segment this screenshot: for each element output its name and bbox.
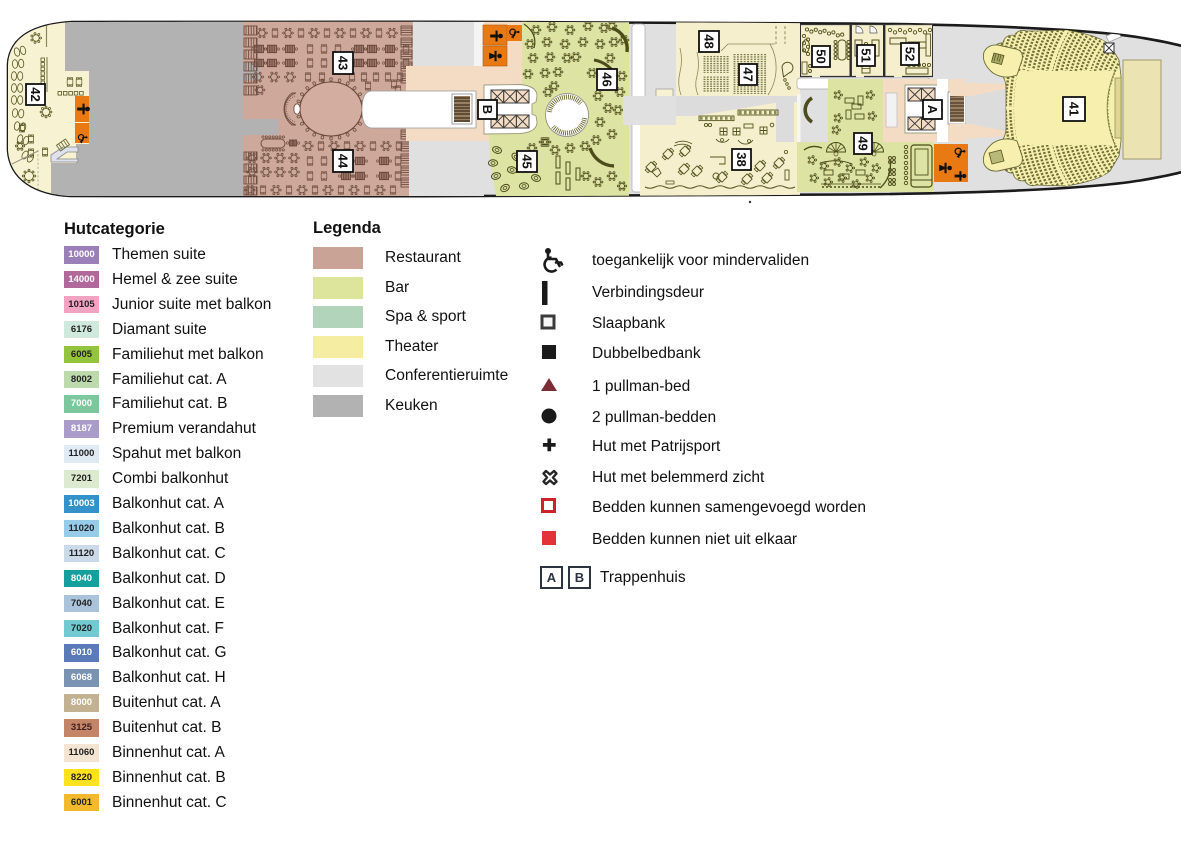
svg-text:45: 45 <box>520 154 535 168</box>
svg-text:46: 46 <box>600 72 615 86</box>
svg-text:B: B <box>480 105 495 114</box>
svg-text:44: 44 <box>336 154 351 169</box>
svg-text:A: A <box>925 105 940 115</box>
svg-text:49: 49 <box>856 136 871 150</box>
svg-text:43: 43 <box>336 56 351 70</box>
svg-text:50: 50 <box>814 49 829 63</box>
svg-text:51: 51 <box>859 48 874 62</box>
svg-text:38: 38 <box>734 152 749 166</box>
svg-text:52: 52 <box>903 47 918 61</box>
svg-text:41: 41 <box>1067 102 1082 116</box>
svg-text:42: 42 <box>28 87 43 101</box>
svg-text:48: 48 <box>702 34 717 48</box>
svg-text:47: 47 <box>741 67 756 81</box>
